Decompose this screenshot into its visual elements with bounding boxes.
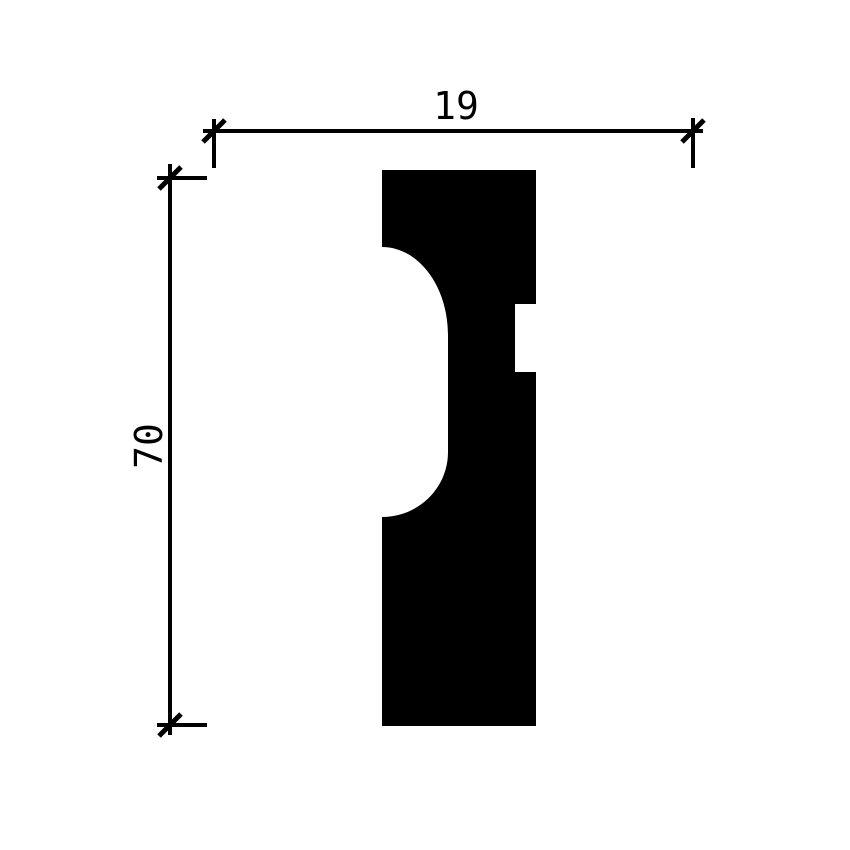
moulding-profile-silhouette: [382, 170, 536, 726]
height-dimension-label: 70: [127, 423, 171, 469]
moulding-profile-diagram: 19 70: [0, 0, 850, 850]
technical-drawing-canvas: 19 70: [0, 0, 850, 850]
width-dimension-label: 19: [433, 84, 479, 128]
